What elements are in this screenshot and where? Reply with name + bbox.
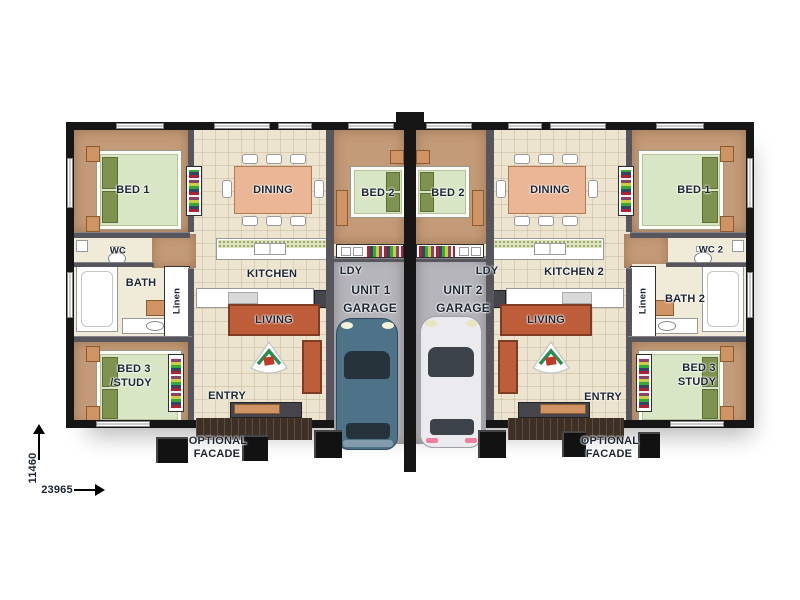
unit-label-u2: UNIT 2 xyxy=(443,283,482,297)
vanity-basin-u2 xyxy=(658,321,676,331)
nightstand xyxy=(720,346,734,362)
windshield xyxy=(428,347,474,377)
car-unit1-icon xyxy=(336,318,398,450)
tail-light xyxy=(465,438,477,443)
robe-bed3-u1 xyxy=(168,354,184,412)
washer xyxy=(459,247,469,256)
wall-bath-bed3-u1 xyxy=(72,336,192,342)
window xyxy=(116,123,164,129)
garage-pillar-u1 xyxy=(314,430,342,458)
room-label-bed2-u1: BED 2 xyxy=(361,187,394,199)
headlight xyxy=(425,320,437,327)
dimension-arrowhead-up xyxy=(33,424,45,434)
room-label-entry-u2: ENTRY xyxy=(584,391,622,403)
wall-garage-east-u2 xyxy=(486,128,494,426)
builder-logo-icon xyxy=(530,340,572,376)
dining-chair xyxy=(562,216,578,226)
facade-label1-u1: OPTIONAL xyxy=(189,435,247,447)
dining-chair xyxy=(588,180,598,198)
entry-shelf-u1 xyxy=(234,404,280,414)
nightstand xyxy=(86,216,100,232)
cooktop-u2 xyxy=(562,292,592,304)
dryer xyxy=(353,247,363,256)
wall-wc-bath-u2 xyxy=(666,262,748,267)
window xyxy=(670,421,724,427)
room-label-bed3b-u2: STUDY xyxy=(678,376,716,388)
room-label-bed3-u1: BED 3 xyxy=(117,363,150,375)
facade-pillar xyxy=(156,437,188,463)
pillow xyxy=(102,389,118,419)
wall-bed1-south-u1 xyxy=(72,232,190,238)
dining-chair xyxy=(266,216,282,226)
wall-bed1-south-u2 xyxy=(630,232,748,238)
dining-chair xyxy=(562,154,578,164)
facade-pillar xyxy=(638,432,660,458)
nightstand xyxy=(86,346,100,362)
garage-label-u1: GARAGE xyxy=(343,301,397,315)
dimension-arrowhead-right xyxy=(95,484,105,496)
window xyxy=(67,272,73,318)
room-label-bath-u1: BATH xyxy=(126,277,157,289)
room-label-kitchen-u2: KITCHEN 2 xyxy=(544,266,604,278)
facade-label1-u2: OPTIONAL xyxy=(581,435,639,447)
floor-plan-canvas: 11460 23965 BED 1 WC BATH Linen BED 3 /S… xyxy=(0,0,800,600)
room-label-ldy-u1: LDY xyxy=(340,265,363,277)
dresser-bed2-u2 xyxy=(472,190,484,226)
window xyxy=(96,421,150,427)
room-label-bed1-u2: BED 1 xyxy=(677,184,710,196)
rear-deck xyxy=(343,440,393,447)
window xyxy=(508,123,542,129)
wall-garage-west-u1 xyxy=(326,128,334,426)
headlight xyxy=(341,322,353,329)
party-wall-center xyxy=(404,112,416,472)
room-label-dining-u1: DINING xyxy=(253,184,293,196)
window xyxy=(348,123,394,129)
wall-wc-bath-u1 xyxy=(72,262,154,267)
bathtub-u1 xyxy=(76,266,118,332)
room-label-bed3b-u1: /STUDY xyxy=(110,377,152,389)
dresser-bed2-u1 xyxy=(336,190,348,226)
room-label-bed2-u2: BED 2 xyxy=(431,187,464,199)
wc-basin-u2 xyxy=(732,240,744,252)
robe-bed3-u2 xyxy=(636,354,652,412)
wall-bed2-garage-u1 xyxy=(334,258,404,262)
wall-bath-bed3-u2 xyxy=(628,336,748,342)
room-label-wc-u2: WC 2 xyxy=(699,245,724,256)
dining-chair xyxy=(242,216,258,226)
room-label-wc-u1: WC xyxy=(110,246,126,257)
entry-shelf-u2 xyxy=(540,404,586,414)
tub-inner xyxy=(81,271,113,327)
clothes xyxy=(621,170,631,212)
pillow xyxy=(702,389,718,419)
nightstand xyxy=(720,146,734,162)
dining-chair xyxy=(222,180,232,198)
clothes xyxy=(367,246,403,257)
room-label-bed1-u1: BED 1 xyxy=(116,184,149,196)
robe-bed1-u2 xyxy=(618,166,634,216)
wc-basin-u1 xyxy=(76,240,88,252)
nightstand xyxy=(720,216,734,232)
windshield xyxy=(344,351,390,379)
dining-chair xyxy=(290,216,306,226)
facade-label2-u2: FACADE xyxy=(586,448,632,460)
wall-south-u1b xyxy=(312,420,334,428)
wall-bath-living-u2 xyxy=(626,268,632,426)
nightstand xyxy=(390,150,404,164)
garage-label-u2: GARAGE xyxy=(436,301,490,315)
dining-chair xyxy=(266,154,282,164)
dining-chair xyxy=(314,180,324,198)
robe-bed1-u1 xyxy=(186,166,202,216)
unit-label-u1: UNIT 1 xyxy=(351,283,390,297)
washer xyxy=(341,247,351,256)
dining-chair xyxy=(496,180,506,198)
clothes xyxy=(189,170,199,212)
vanity-basin-u1 xyxy=(146,321,164,331)
dining-chair xyxy=(538,154,554,164)
tub-inner xyxy=(707,271,739,327)
window xyxy=(656,123,704,129)
window xyxy=(550,123,606,129)
clothes xyxy=(419,246,455,257)
clothes xyxy=(639,358,649,408)
bathtub-u2 xyxy=(702,266,744,332)
dining-chair xyxy=(538,216,554,226)
window xyxy=(426,123,472,129)
hall-floor-u1 xyxy=(152,234,196,268)
window xyxy=(747,158,753,208)
dining-chair xyxy=(514,154,530,164)
headlight xyxy=(466,320,478,327)
chaise-u2 xyxy=(498,340,518,394)
facade-label2-u1: FACADE xyxy=(194,448,240,460)
dryer xyxy=(471,247,481,256)
garage-pillar-u2 xyxy=(478,430,506,458)
room-label-dining-u2: DINING xyxy=(530,184,570,196)
room-label-bath-u2: BATH 2 xyxy=(665,293,705,305)
room-label-linen-u2: Linen xyxy=(638,288,649,314)
hall-floor-u2 xyxy=(624,234,668,268)
party-wall-cap xyxy=(396,112,424,122)
room-label-ldy-u2: LDY xyxy=(476,265,499,277)
rear-window xyxy=(430,419,474,435)
dimension-width: 23965 xyxy=(41,484,73,496)
wall-south-u2a xyxy=(486,420,508,428)
room-label-living-u1: LIVING xyxy=(255,314,293,326)
window xyxy=(278,123,312,129)
dimension-depth: 11460 xyxy=(27,453,39,484)
wall-bath-living-u1 xyxy=(188,268,194,426)
room-label-kitchen-u1: KITCHEN xyxy=(247,268,297,280)
robe-laundry-strip-u1 xyxy=(336,244,404,258)
cooktop-u1 xyxy=(228,292,258,304)
room-label-entry-u1: ENTRY xyxy=(208,390,246,402)
window xyxy=(747,272,753,318)
kitchen-sink-u1 xyxy=(254,243,286,255)
window xyxy=(214,123,270,129)
clothes xyxy=(171,358,181,408)
room-label-bed3-u2: BED 3 xyxy=(682,362,715,374)
robe-laundry-strip-u2 xyxy=(416,244,484,258)
nightstand xyxy=(416,150,430,164)
headlight xyxy=(382,322,394,329)
kitchen-sink-u2 xyxy=(534,243,566,255)
window xyxy=(67,158,73,208)
tail-light xyxy=(426,438,438,443)
room-label-linen-u1: Linen xyxy=(172,288,183,314)
nightstand xyxy=(86,146,100,162)
dining-chair xyxy=(242,154,258,164)
car-unit2-icon xyxy=(420,316,482,448)
dining-chair xyxy=(290,154,306,164)
rear-window xyxy=(346,423,390,439)
builder-logo-icon xyxy=(248,340,290,376)
room-label-living-u2: LIVING xyxy=(527,314,565,326)
chaise-u1 xyxy=(302,340,322,394)
wall-bed2-garage-u2 xyxy=(416,258,486,262)
dining-chair xyxy=(514,216,530,226)
dimension-arrow-right-icon xyxy=(74,489,96,491)
